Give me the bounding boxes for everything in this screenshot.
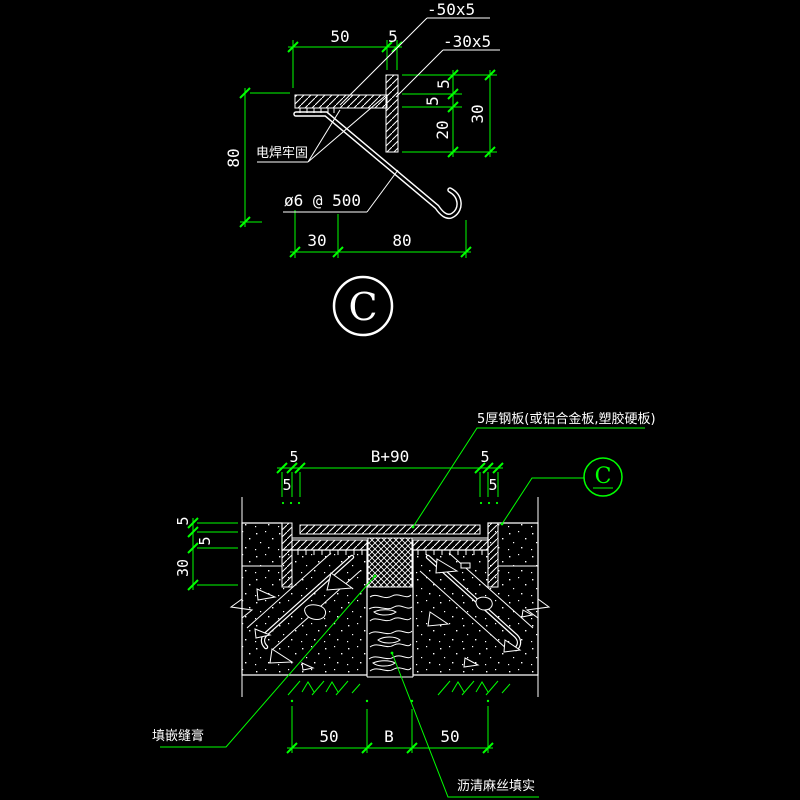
background xyxy=(0,0,800,800)
dim-left-height: 80 xyxy=(224,148,243,167)
dim-left-leg: 30 xyxy=(174,559,192,577)
label-sealant: 填嵌缝膏 xyxy=(152,728,204,744)
dim-top-thk: 5 xyxy=(388,27,398,46)
cover-plate xyxy=(300,525,480,534)
dim-top-left-inner: 5 xyxy=(289,448,298,466)
dim-right-below: 20 xyxy=(433,120,452,139)
dim-top-right-outer: 5 xyxy=(488,476,497,494)
label-weld: 电焊牢固 xyxy=(256,145,308,161)
left-upright-plate xyxy=(282,523,292,587)
dim-right-thk: 5 xyxy=(423,96,442,106)
label-cover-plate: 5厚钢板(或铝合金板,塑胶硬板) xyxy=(477,411,656,427)
dim-top-right-inner: 5 xyxy=(480,448,489,466)
dim-bottom-right: 50 xyxy=(440,727,459,746)
detail-marker-letter: C xyxy=(348,285,377,329)
right-angle-leg xyxy=(413,540,488,550)
dim-bottom-reach: 80 xyxy=(392,231,411,250)
dim-top-width: 50 xyxy=(330,27,349,46)
dim-left-bed: 5 xyxy=(196,536,214,545)
joint-sealant-fill xyxy=(368,538,412,587)
label-plate-flat: -50x5 xyxy=(427,0,475,19)
dim-right-lip: 5 xyxy=(434,79,453,89)
dim-bottom-offset: 30 xyxy=(307,231,326,250)
cad-canvas: 50 5 80 5 5 20 30 30 80 -50x5 -30x5 电焊牢固… xyxy=(0,0,800,800)
detail-reference-letter: C xyxy=(595,464,612,489)
label-anchor-bar: ø6 @ 500 xyxy=(284,191,361,210)
upright-plate-30x5 xyxy=(386,75,398,152)
dim-left-plate: 5 xyxy=(174,516,192,525)
dim-bottom-left: 50 xyxy=(319,727,338,746)
left-angle-leg xyxy=(292,540,367,550)
dim-top-left-outer: 5 xyxy=(282,476,291,494)
label-oakum: 沥清麻丝填实 xyxy=(457,779,535,794)
dim-top-span: B+90 xyxy=(371,447,410,466)
label-plate-upright: -30x5 xyxy=(443,32,491,51)
dim-bottom-gap: B xyxy=(384,727,394,746)
cad-viewport: 50 5 80 5 5 20 30 30 80 -50x5 -30x5 电焊牢固… xyxy=(0,0,800,800)
right-upright-plate xyxy=(488,523,498,587)
dim-right-total: 30 xyxy=(468,104,487,123)
